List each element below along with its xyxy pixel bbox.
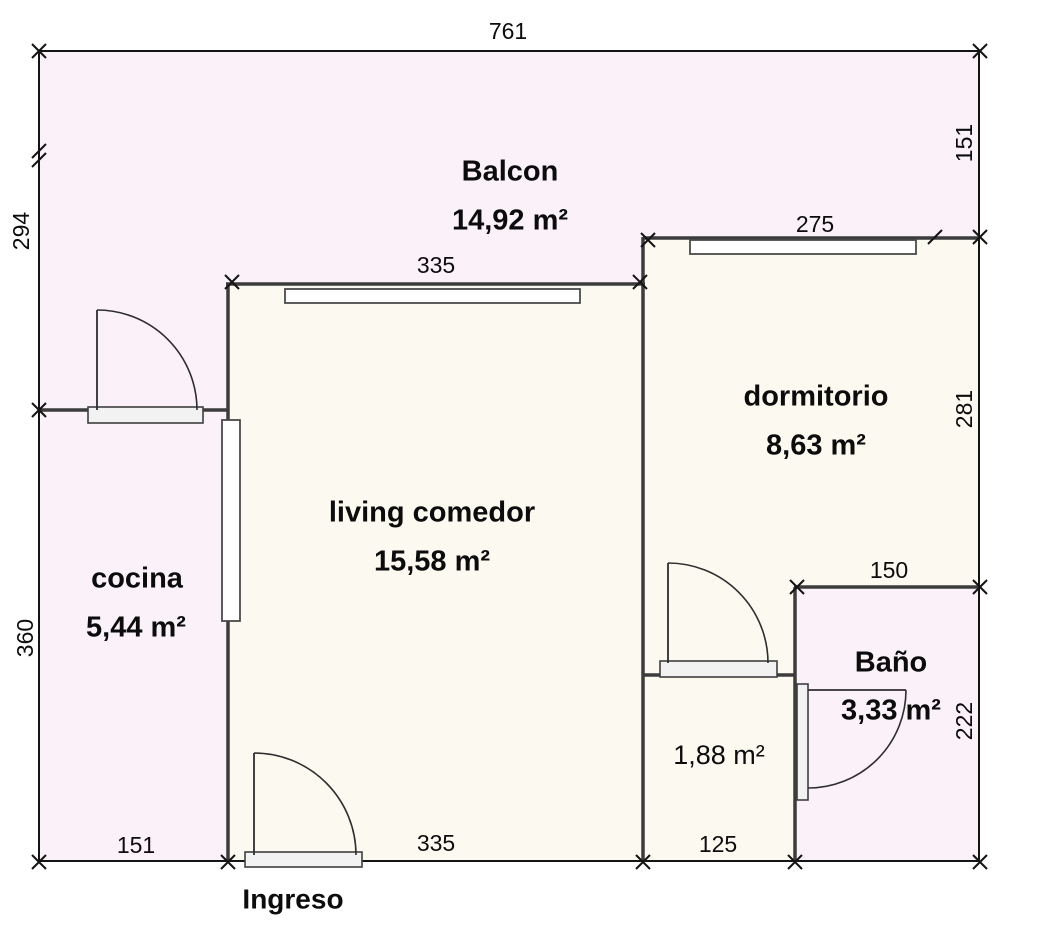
room-area-kitchen: 5,44 m² xyxy=(86,612,186,644)
room-label-bathroom: Baño xyxy=(855,647,928,679)
dim-living-width-bottom: 335 xyxy=(417,830,455,856)
dim-bathroom-width-top: 150 xyxy=(870,557,908,583)
dim-bedroom-width-top: 275 xyxy=(796,211,834,237)
room-area-bedroom: 8,63 m² xyxy=(766,430,866,462)
room-label-living: living comedor xyxy=(329,497,535,529)
floor-plan-page: 761 294 360 151 281 222 335 275 150 335 … xyxy=(0,0,1044,950)
room-area-living: 15,58 m² xyxy=(374,546,490,578)
entrance-label: Ingreso xyxy=(242,883,343,914)
room-area-bathroom: 3,33 m² xyxy=(841,695,941,727)
dim-kitchen-width-bottom: 151 xyxy=(117,832,155,858)
bathroom-door-frame xyxy=(797,684,808,800)
dim-overall-width-top: 761 xyxy=(489,18,527,44)
room-label-bedroom: dormitorio xyxy=(744,381,889,413)
bedroom-window xyxy=(690,240,916,254)
dim-bathroom-height-right: 222 xyxy=(951,702,977,740)
entrance-door-threshold xyxy=(245,852,362,867)
hall-fill xyxy=(644,587,794,861)
room-area-balcony: 14,92 m² xyxy=(452,205,568,237)
dim-kitchen-height-left: 360 xyxy=(12,619,38,657)
room-label-kitchen: cocina xyxy=(91,563,184,595)
bedroom-door-threshold xyxy=(660,661,777,677)
room-label-balcony: Balcon xyxy=(462,156,559,188)
dim-bedroom-height-right: 281 xyxy=(951,390,977,428)
floor-plan-drawing: 761 294 360 151 281 222 335 275 150 335 … xyxy=(0,0,1044,950)
kitchen-door-threshold xyxy=(88,407,203,423)
dim-balcony-height-right: 151 xyxy=(951,124,977,162)
room-area-hall: 1,88 m² xyxy=(673,740,765,770)
dim-balcony-height-left: 294 xyxy=(8,212,34,251)
living-window xyxy=(285,289,580,303)
dim-living-width-top: 335 xyxy=(417,252,455,278)
living-side-window xyxy=(222,420,240,621)
dim-hall-width-bottom: 125 xyxy=(699,831,737,857)
